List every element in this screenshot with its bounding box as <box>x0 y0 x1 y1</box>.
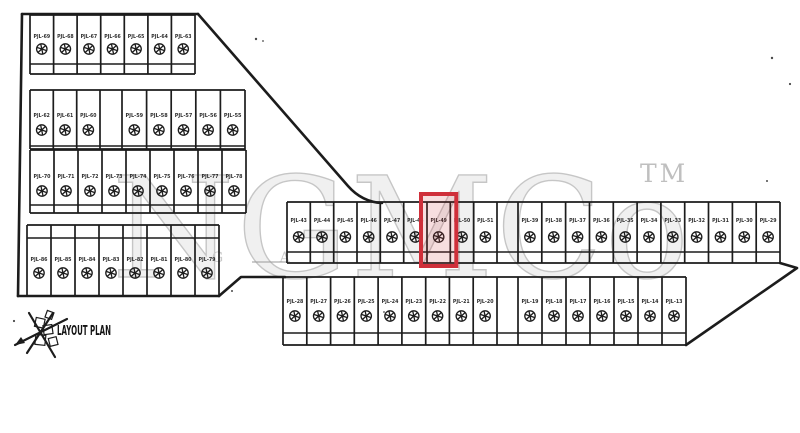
plot-label: PJL-23 <box>405 299 422 305</box>
plot-label: PJL-22 <box>429 299 446 305</box>
plot-label: PJL-25 <box>358 299 375 305</box>
plot-label: PJL-66 <box>104 34 121 40</box>
plot: PJL-57 <box>175 113 193 135</box>
plot-label: PJL-57 <box>175 113 193 119</box>
plot-marker-icon <box>154 125 164 135</box>
plot-label: PJL-38 <box>545 218 562 224</box>
plot-label: PJL-82 <box>127 257 144 263</box>
plot-marker-icon <box>58 268 68 278</box>
plot-label: PJL-63 <box>175 34 192 40</box>
plot: PJL-68 <box>57 34 74 54</box>
plot-marker-icon <box>409 311 419 321</box>
plot-label: PJL-19 <box>522 299 539 305</box>
plot: PJL-58 <box>150 113 168 135</box>
plot: PJL-72 <box>82 174 99 196</box>
plot-label: PJL-44 <box>314 218 331 224</box>
plot: PJL-86 <box>31 257 48 278</box>
plot-marker-icon <box>84 44 94 54</box>
plot-label: PJL-35 <box>617 218 634 224</box>
plot-label: PJL-72 <box>82 174 99 180</box>
plot-label: PJL-61 <box>57 113 74 119</box>
plot-label: PJL-28 <box>287 299 304 305</box>
plot-marker-icon <box>107 44 117 54</box>
plot-marker-icon <box>83 125 93 135</box>
plot: PJL-30 <box>736 218 753 242</box>
plot-label: PJL-30 <box>736 218 753 224</box>
plot-label: PJL-47 <box>384 218 401 224</box>
plot-label: PJL-79 <box>199 257 216 263</box>
plot: PJL-71 <box>58 174 75 196</box>
plot-label: PJL-59 <box>126 113 144 119</box>
plot-label: PJL-62 <box>34 113 51 119</box>
plot-marker-icon <box>129 125 139 135</box>
highlighted-plot-outline <box>421 194 456 266</box>
plot-marker-icon <box>337 311 347 321</box>
layout-plan-title: LAYOUT PLAN <box>57 324 111 339</box>
plot-label: PJL-56 <box>199 113 217 119</box>
plot-marker-icon <box>131 44 141 54</box>
plot: PJL-62 <box>34 113 51 135</box>
plot-label: PJL-64 <box>151 34 168 40</box>
plot: PJL-64 <box>151 34 168 54</box>
plot-label: PJL-85 <box>55 257 72 263</box>
plot-label: PJL-77 <box>202 174 219 180</box>
plot: PJL-56 <box>199 113 217 135</box>
plot-marker-icon <box>37 44 47 54</box>
plot-label: PJL-16 <box>594 299 611 305</box>
plot-marker-icon <box>739 232 749 242</box>
boundary-left-edge <box>18 14 22 296</box>
plot-marker-icon <box>763 232 773 242</box>
plot-label: PJL-86 <box>31 257 48 263</box>
plot: PJL-70 <box>34 174 51 196</box>
plot-marker-icon <box>691 232 701 242</box>
plot-marker-icon <box>178 44 188 54</box>
plot-label: PJL-76 <box>178 174 195 180</box>
plot-label: PJL-20 <box>477 299 494 305</box>
plot-marker-icon <box>60 125 70 135</box>
plot: PJL-59 <box>126 113 144 135</box>
plot-label: PJL-29 <box>760 218 777 224</box>
plot: PJL-66 <box>104 34 121 54</box>
plot-label: PJL-60 <box>80 113 97 119</box>
plot: PJL-63 <box>175 34 192 54</box>
plot-marker-icon <box>228 125 238 135</box>
plot-label: PJL-46 <box>361 218 378 224</box>
plot-label: PJL-84 <box>79 257 96 263</box>
plot-marker-icon <box>432 311 442 321</box>
plot-marker-icon <box>37 186 47 196</box>
plot-marker-icon <box>715 232 725 242</box>
plot-label: PJL-74 <box>130 174 147 180</box>
plot-label: PJL-45 <box>337 218 354 224</box>
plot-marker-icon <box>61 186 71 196</box>
plot-label: PJL-43 <box>291 218 308 224</box>
plot-label: PJL-65 <box>128 34 145 40</box>
plot-marker-icon <box>573 311 583 321</box>
highlighted-plot-layer <box>421 194 456 266</box>
plot-label: PJL-14 <box>642 299 659 305</box>
plot: PJL-61 <box>57 113 74 135</box>
plot-marker-icon <box>621 311 631 321</box>
plot-label: PJL-31 <box>712 218 729 224</box>
plot-marker-icon <box>203 125 213 135</box>
plot-marker-icon <box>60 44 70 54</box>
plot-label: PJL-33 <box>664 218 681 224</box>
plot-label: PJL-51 <box>477 218 494 224</box>
plot: PJL-65 <box>128 34 145 54</box>
plot-label: PJL-71 <box>58 174 75 180</box>
plot-label: PJL-15 <box>618 299 635 305</box>
plot-label: PJL-70 <box>34 174 51 180</box>
plot-marker-icon <box>178 125 188 135</box>
plot: PJL-69 <box>34 34 51 54</box>
plot-label: PJL-58 <box>150 113 168 119</box>
watermark-tm-mark: TM <box>640 159 688 188</box>
plot-label: PJL-67 <box>81 34 98 40</box>
plot-label: PJL-34 <box>641 218 658 224</box>
plot-label: PJL-18 <box>546 299 563 305</box>
plot-label: PJL-75 <box>154 174 171 180</box>
layout-plan-drawing: NGMCo TM G A PJL-69PJL-68PJL-67PJL-66PJL… <box>0 0 800 433</box>
plot-label: PJL-69 <box>34 34 51 40</box>
plot-label: PJL-27 <box>310 299 327 305</box>
plot-marker-icon <box>361 311 371 321</box>
plot-label: PJL-26 <box>334 299 351 305</box>
plot-marker-icon <box>154 44 164 54</box>
plot-label: PJL-24 <box>382 299 399 305</box>
plot-label: PJL-21 <box>453 299 470 305</box>
plot: PJL-55 <box>224 113 242 135</box>
plot-marker-icon <box>525 311 535 321</box>
plot-marker-icon <box>385 311 395 321</box>
plot-label: PJL-36 <box>593 218 610 224</box>
plot: PJL-31 <box>712 218 729 242</box>
plot-label: PJL-78 <box>226 174 243 180</box>
plot-marker-icon <box>82 268 92 278</box>
plot-marker-icon <box>549 311 559 321</box>
plot-label: PJL-13 <box>666 299 683 305</box>
plot-marker-icon <box>85 186 95 196</box>
plot-label: PJL-39 <box>522 218 539 224</box>
plot-label: PJL-37 <box>569 218 586 224</box>
plot-label: PJL-17 <box>570 299 587 305</box>
plot-marker-icon <box>290 311 300 321</box>
plot-marker-icon <box>645 311 655 321</box>
plot: PJL-67 <box>81 34 98 54</box>
plot-row-left-row-2: PJL-62PJL-61PJL-60PJL-59PJL-58PJL-57PJL-… <box>30 90 245 149</box>
boundary-right-diagonal <box>686 263 797 345</box>
plot-marker-icon <box>456 311 466 321</box>
plot: PJL-84 <box>79 257 96 278</box>
plot-marker-icon <box>669 311 679 321</box>
plot-label: PJL-55 <box>224 113 242 119</box>
plot-marker-icon <box>313 311 323 321</box>
plot: PJL-29 <box>760 218 777 242</box>
plot-label: PJL-73 <box>106 174 123 180</box>
plot-label: PJL-83 <box>103 257 120 263</box>
layout-plan-page: NGMCo TM G A PJL-69PJL-68PJL-67PJL-66PJL… <box>0 0 800 433</box>
plot-marker-icon <box>36 125 46 135</box>
plot-marker-icon <box>34 268 44 278</box>
plot: PJL-85 <box>55 257 72 278</box>
plot-label: PJL-80 <box>175 257 192 263</box>
plot-label: PJL-81 <box>151 257 168 263</box>
plot-label: PJL-32 <box>688 218 705 224</box>
plot-marker-icon <box>597 311 607 321</box>
plot-marker-icon <box>480 311 490 321</box>
plot-label: PJL-68 <box>57 34 74 40</box>
plot: PJL-60 <box>80 113 97 135</box>
plot-row-left-top-row: PJL-69PJL-68PJL-67PJL-66PJL-65PJL-64PJL-… <box>30 15 195 74</box>
